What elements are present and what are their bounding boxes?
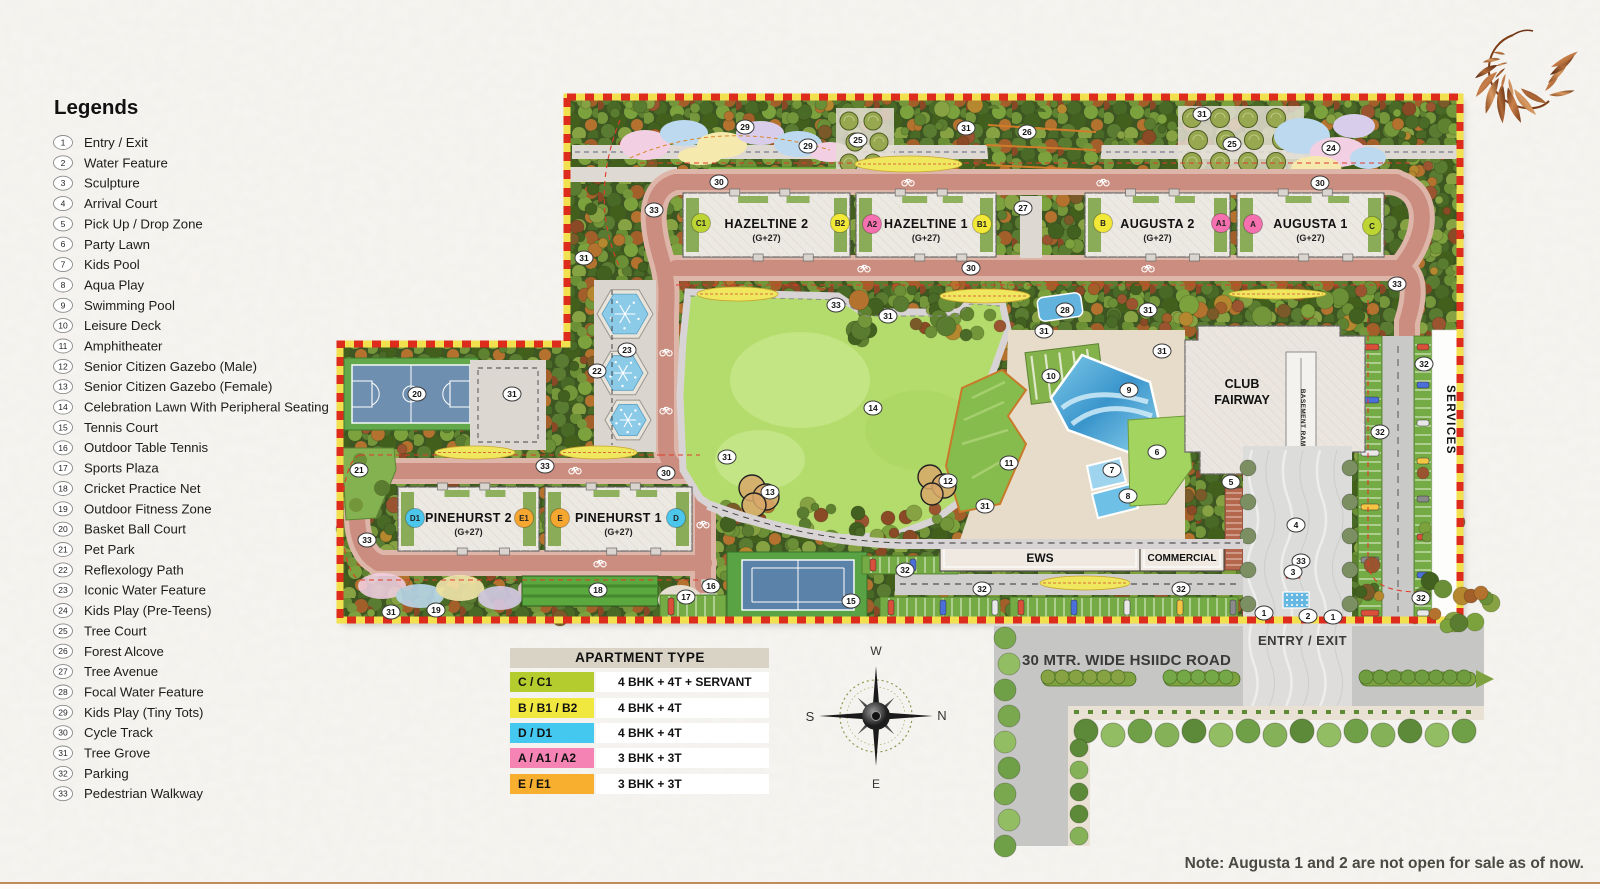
svg-text:31: 31 xyxy=(1143,305,1153,315)
svg-text:E1: E1 xyxy=(519,514,529,523)
svg-text:4 BHK + 4T + SERVANT: 4 BHK + 4T + SERVANT xyxy=(618,675,752,689)
svg-text:18: 18 xyxy=(58,484,68,494)
svg-text:3: 3 xyxy=(1291,567,1296,577)
svg-text:23: 23 xyxy=(622,345,632,355)
svg-text:31: 31 xyxy=(980,501,990,511)
svg-text:23: 23 xyxy=(58,585,68,595)
svg-text:(G+27): (G+27) xyxy=(454,527,482,537)
svg-text:Sculpture: Sculpture xyxy=(84,176,140,191)
svg-text:B2: B2 xyxy=(835,219,846,228)
svg-text:26: 26 xyxy=(58,646,68,656)
svg-text:Sports Plaza: Sports Plaza xyxy=(84,461,159,476)
svg-text:26: 26 xyxy=(1022,127,1032,137)
svg-text:21: 21 xyxy=(354,465,364,475)
svg-text:Forest Alcove: Forest Alcove xyxy=(84,644,164,659)
svg-text:7: 7 xyxy=(61,260,66,270)
svg-text:25: 25 xyxy=(58,626,68,636)
svg-text:30: 30 xyxy=(58,728,68,738)
svg-text:33: 33 xyxy=(831,300,841,310)
svg-text:Celebration Lawn With Peripher: Celebration Lawn With Peripheral Seating xyxy=(84,400,329,415)
svg-text:33: 33 xyxy=(649,205,659,215)
svg-text:4: 4 xyxy=(61,199,66,209)
svg-text:14: 14 xyxy=(58,402,68,412)
svg-text:Entry / Exit: Entry / Exit xyxy=(84,135,148,150)
svg-text:C: C xyxy=(1369,222,1375,231)
svg-text:25: 25 xyxy=(853,135,863,145)
svg-text:Amphitheater: Amphitheater xyxy=(84,339,163,354)
svg-text:7: 7 xyxy=(1110,465,1115,475)
svg-text:4 BHK + 4T: 4 BHK + 4T xyxy=(618,726,682,740)
svg-text:13: 13 xyxy=(58,382,68,392)
svg-text:2: 2 xyxy=(61,158,66,168)
svg-text:Water Feature: Water Feature xyxy=(84,155,168,170)
svg-text:Focal Water Feature: Focal Water Feature xyxy=(84,685,204,700)
svg-text:30: 30 xyxy=(966,263,976,273)
svg-text:AUGUSTA 2: AUGUSTA 2 xyxy=(1120,217,1194,231)
svg-text:ENTRY / EXIT: ENTRY / EXIT xyxy=(1258,633,1347,648)
svg-text:30: 30 xyxy=(714,177,724,187)
svg-text:1: 1 xyxy=(1262,608,1267,618)
svg-text:3: 3 xyxy=(61,178,66,188)
svg-text:24: 24 xyxy=(1326,143,1336,153)
svg-text:31: 31 xyxy=(1039,326,1049,336)
svg-text:(G+27): (G+27) xyxy=(604,527,632,537)
svg-text:A1: A1 xyxy=(1216,219,1227,228)
svg-text:29: 29 xyxy=(58,707,68,717)
svg-text:CLUB: CLUB xyxy=(1225,377,1260,391)
svg-text:31: 31 xyxy=(1197,109,1207,119)
svg-text:24: 24 xyxy=(58,606,68,616)
svg-text:1: 1 xyxy=(61,138,66,148)
svg-text:10: 10 xyxy=(1046,371,1056,381)
svg-text:D1: D1 xyxy=(410,514,421,523)
svg-text:31: 31 xyxy=(1157,346,1167,356)
svg-text:PINEHURST 1: PINEHURST 1 xyxy=(575,511,662,525)
svg-text:4 BHK + 4T: 4 BHK + 4T xyxy=(618,701,682,715)
svg-text:Tree Court: Tree Court xyxy=(84,623,147,638)
svg-text:5: 5 xyxy=(1229,477,1234,487)
svg-text:31: 31 xyxy=(386,607,396,617)
svg-text:B1: B1 xyxy=(977,220,988,229)
svg-text:27: 27 xyxy=(1018,203,1028,213)
svg-text:32: 32 xyxy=(900,565,910,575)
svg-text:32: 32 xyxy=(58,768,68,778)
svg-text:EWS: EWS xyxy=(1026,551,1053,565)
svg-text:22: 22 xyxy=(592,366,602,376)
svg-text:3 BHK + 3T: 3 BHK + 3T xyxy=(618,751,682,765)
svg-text:11: 11 xyxy=(59,341,68,351)
svg-text:8: 8 xyxy=(61,280,66,290)
svg-text:(G+27): (G+27) xyxy=(1143,233,1171,243)
svg-text:13: 13 xyxy=(765,487,775,497)
svg-text:(G+27): (G+27) xyxy=(1296,233,1324,243)
svg-text:COMMERCIAL: COMMERCIAL xyxy=(1148,553,1217,564)
svg-text:Senior Citizen Gazebo (Female): Senior Citizen Gazebo (Female) xyxy=(84,379,272,394)
svg-text:1: 1 xyxy=(1331,612,1336,622)
svg-text:22: 22 xyxy=(58,565,68,575)
svg-text:33: 33 xyxy=(1392,279,1402,289)
svg-text:30 MTR. WIDE HSIIDC ROAD: 30 MTR. WIDE HSIIDC ROAD xyxy=(1022,652,1231,669)
svg-text:Outdoor Table Tennis: Outdoor Table Tennis xyxy=(84,440,209,455)
svg-text:12: 12 xyxy=(58,361,68,371)
svg-text:Tree Grove: Tree Grove xyxy=(84,746,150,761)
svg-text:19: 19 xyxy=(58,504,68,514)
svg-text:29: 29 xyxy=(740,122,750,132)
svg-text:3 BHK + 3T: 3 BHK + 3T xyxy=(618,777,682,791)
svg-text:33: 33 xyxy=(1296,556,1306,566)
svg-text:N: N xyxy=(937,708,946,723)
svg-text:Senior Citizen Gazebo (Male): Senior Citizen Gazebo (Male) xyxy=(84,359,257,374)
svg-text:APARTMENT TYPE: APARTMENT TYPE xyxy=(575,650,705,665)
svg-text:33: 33 xyxy=(58,789,68,799)
svg-text:HAZELTINE 2: HAZELTINE 2 xyxy=(724,217,808,231)
svg-text:Pet Park: Pet Park xyxy=(84,542,135,557)
svg-text:C / C1: C / C1 xyxy=(518,675,552,689)
svg-text:20: 20 xyxy=(58,524,68,534)
svg-text:31: 31 xyxy=(961,123,971,133)
svg-text:32: 32 xyxy=(977,584,987,594)
svg-text:31: 31 xyxy=(579,253,589,263)
svg-text:A / A1 / A2: A / A1 / A2 xyxy=(518,751,576,765)
svg-text:E / E1: E / E1 xyxy=(518,777,551,791)
svg-text:6: 6 xyxy=(61,239,66,249)
svg-text:Iconic Water Feature: Iconic Water Feature xyxy=(84,583,206,598)
svg-text:Pedestrian Walkway: Pedestrian Walkway xyxy=(84,786,203,801)
svg-text:17: 17 xyxy=(58,463,68,473)
svg-text:4: 4 xyxy=(1294,520,1299,530)
svg-text:Tree Avenue: Tree Avenue xyxy=(84,664,158,679)
svg-text:E: E xyxy=(872,777,880,791)
svg-text:Kids Play (Pre-Teens): Kids Play (Pre-Teens) xyxy=(84,603,212,618)
svg-text:15: 15 xyxy=(846,596,856,606)
svg-text:(G+27): (G+27) xyxy=(912,233,940,243)
svg-text:27: 27 xyxy=(58,667,68,677)
svg-text:Tennis Court: Tennis Court xyxy=(84,420,158,435)
svg-text:31: 31 xyxy=(722,452,732,462)
svg-text:Pick Up / Drop Zone: Pick Up / Drop Zone xyxy=(84,216,203,231)
svg-text:9: 9 xyxy=(61,300,66,310)
svg-text:12: 12 xyxy=(943,476,953,486)
svg-text:20: 20 xyxy=(412,389,422,399)
svg-text:Cycle Track: Cycle Track xyxy=(84,725,153,740)
svg-text:21: 21 xyxy=(58,545,68,555)
svg-text:14: 14 xyxy=(868,403,878,413)
svg-text:Arrival Court: Arrival Court xyxy=(84,196,158,211)
svg-text:FAIRWAY: FAIRWAY xyxy=(1214,393,1270,407)
svg-text:29: 29 xyxy=(803,141,813,151)
svg-text:Swimming Pool: Swimming Pool xyxy=(84,298,175,313)
svg-text:Reflexology Path: Reflexology Path xyxy=(84,562,184,577)
svg-text:16: 16 xyxy=(58,443,68,453)
svg-text:D: D xyxy=(673,514,679,523)
svg-text:31: 31 xyxy=(883,311,893,321)
svg-text:Aqua Play: Aqua Play xyxy=(84,278,145,293)
svg-text:S: S xyxy=(806,709,815,724)
svg-text:8: 8 xyxy=(1126,491,1131,501)
svg-text:Party Lawn: Party Lawn xyxy=(84,237,150,252)
svg-text:31: 31 xyxy=(58,748,68,758)
svg-text:30: 30 xyxy=(661,468,671,478)
svg-text:2: 2 xyxy=(1306,611,1311,621)
svg-text:Legends: Legends xyxy=(54,96,138,119)
svg-text:9: 9 xyxy=(1127,385,1132,395)
svg-text:Cricket Practice Net: Cricket Practice Net xyxy=(84,481,201,496)
svg-text:30: 30 xyxy=(1315,178,1325,188)
svg-text:17: 17 xyxy=(681,592,691,602)
svg-text:Note: Augusta 1 and 2 are not: Note: Augusta 1 and 2 are not open for s… xyxy=(1185,855,1584,872)
svg-text:10: 10 xyxy=(58,321,68,331)
svg-text:Kids Play (Tiny Tots): Kids Play (Tiny Tots) xyxy=(84,705,203,720)
svg-text:Basket Ball Court: Basket Ball Court xyxy=(84,522,186,537)
svg-text:Leisure Deck: Leisure Deck xyxy=(84,318,161,333)
svg-text:B / B1 / B2: B / B1 / B2 xyxy=(518,701,578,715)
svg-text:33: 33 xyxy=(362,535,372,545)
svg-text:32: 32 xyxy=(1419,359,1429,369)
svg-text:A2: A2 xyxy=(867,220,878,229)
svg-text:28: 28 xyxy=(1060,305,1070,315)
svg-text:25: 25 xyxy=(1227,139,1237,149)
svg-text:E: E xyxy=(557,514,563,523)
svg-text:BASEMENT RAMP: BASEMENT RAMP xyxy=(1299,389,1306,452)
svg-text:PINEHURST 2: PINEHURST 2 xyxy=(425,511,512,525)
svg-text:Kids Pool: Kids Pool xyxy=(84,257,140,272)
svg-text:AUGUSTA 1: AUGUSTA 1 xyxy=(1273,217,1347,231)
svg-text:32: 32 xyxy=(1176,584,1186,594)
svg-text:B: B xyxy=(1100,219,1106,228)
svg-text:Outdoor Fitness Zone: Outdoor Fitness Zone xyxy=(84,501,212,516)
svg-text:31: 31 xyxy=(507,389,517,399)
svg-text:16: 16 xyxy=(706,581,716,591)
svg-text:HAZELTINE 1: HAZELTINE 1 xyxy=(884,217,968,231)
svg-text:18: 18 xyxy=(593,585,603,595)
svg-text:Parking: Parking xyxy=(84,766,129,781)
svg-text:D / D1: D / D1 xyxy=(518,726,552,740)
svg-text:19: 19 xyxy=(431,605,441,615)
svg-text:W: W xyxy=(870,644,882,658)
svg-text:28: 28 xyxy=(58,687,68,697)
svg-text:5: 5 xyxy=(61,219,66,229)
svg-text:(G+27): (G+27) xyxy=(752,233,780,243)
svg-text:33: 33 xyxy=(540,461,550,471)
svg-text:SERVICES: SERVICES xyxy=(1444,385,1456,455)
svg-text:11: 11 xyxy=(1005,458,1014,468)
svg-text:15: 15 xyxy=(58,422,68,432)
svg-text:C1: C1 xyxy=(696,219,707,228)
svg-text:32: 32 xyxy=(1416,593,1426,603)
svg-text:6: 6 xyxy=(1155,447,1160,457)
svg-text:32: 32 xyxy=(1375,427,1385,437)
svg-text:A: A xyxy=(1250,220,1256,229)
